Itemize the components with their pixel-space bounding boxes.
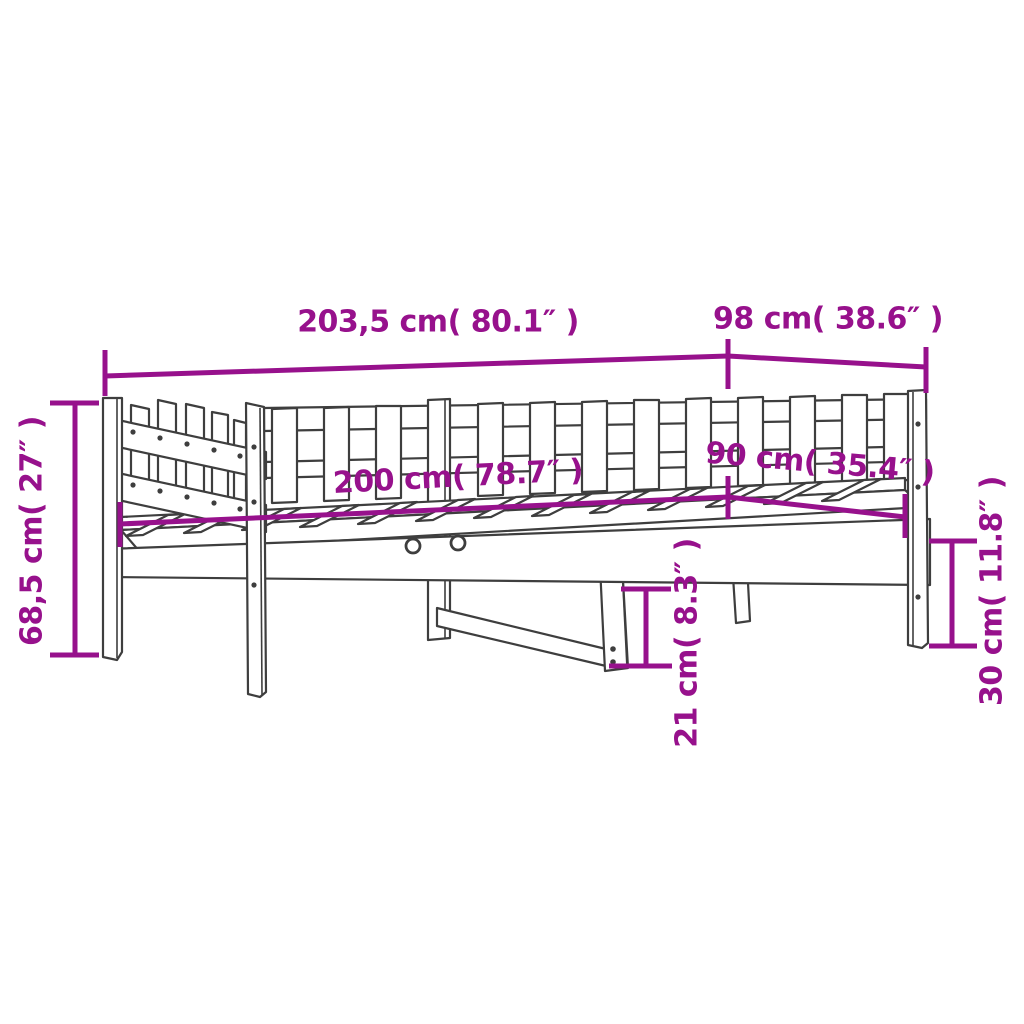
dimension-label-total-length: 203,5 cm( 80.1″ ) [297,305,579,340]
daybed-line-art [0,0,1024,1024]
bolt-head [406,539,420,553]
dimension-label-total-height: 68,5 cm( 27″ ) [15,416,50,646]
diagram-canvas: 203,5 cm( 80.1″ ) 98 cm( 38.6″ ) 68,5 cm… [0,0,1024,1024]
bolt-head [451,536,465,550]
right-end-post [908,390,928,648]
dimension-label-total-width: 98 cm( 38.6″ ) [713,302,943,337]
dimension-label-leg-height: 30 cm( 11.8″ ) [975,476,1010,706]
dimension-label-clearance-height: 21 cm( 8.3″ ) [670,538,705,748]
